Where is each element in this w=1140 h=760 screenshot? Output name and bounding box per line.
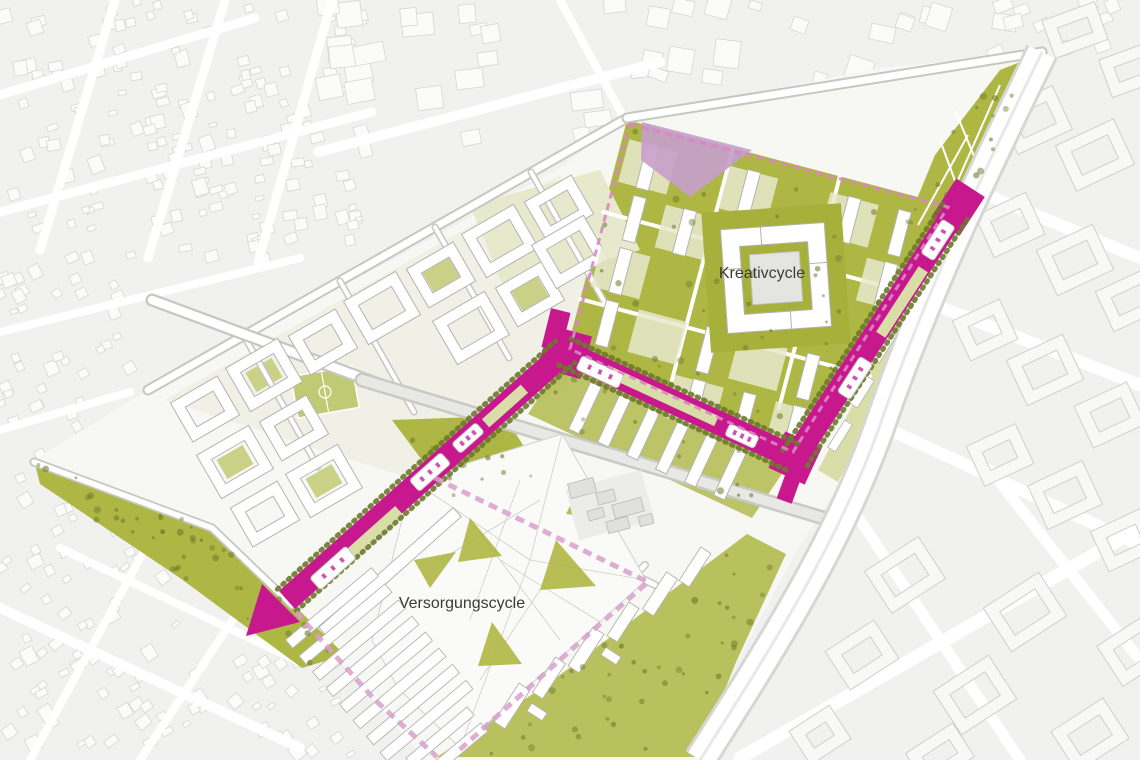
kreativcycle-label: Kreativcycle — [719, 265, 805, 282]
masterplan-canvas: Kreativcycle Versorgungscycle — [0, 0, 1140, 760]
generated-map-layers — [0, 0, 1140, 760]
masterplan-svg: Kreativcycle Versorgungscycle — [0, 0, 1140, 760]
versorgungscycle-label: Versorgungscycle — [399, 595, 525, 612]
